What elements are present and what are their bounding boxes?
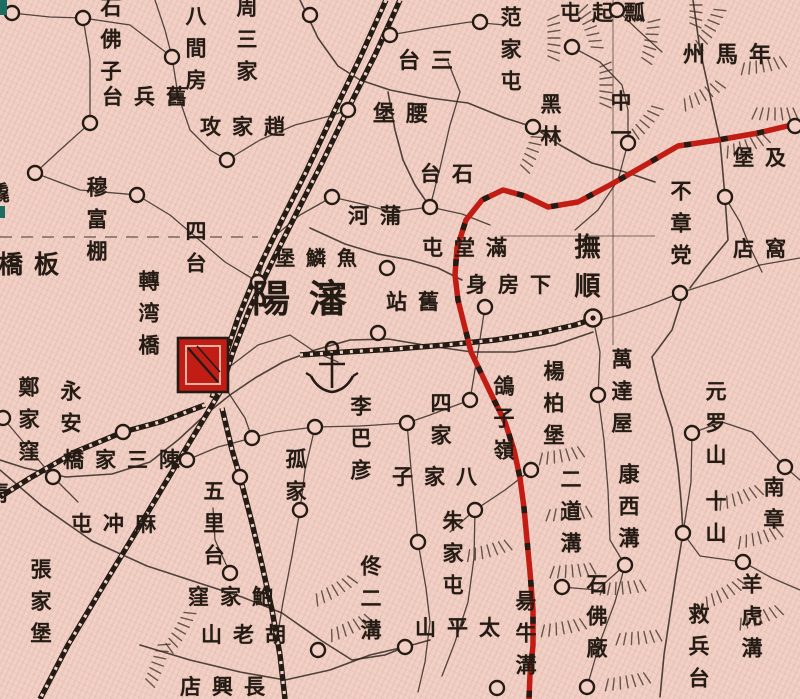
town-marker: [220, 153, 234, 167]
railways: [0, 0, 590, 699]
town-marker: [311, 643, 325, 657]
town-marker: [180, 453, 194, 467]
town-marker: [0, 411, 10, 425]
town-marker: [371, 326, 385, 340]
town-marker: [380, 261, 394, 275]
town-marker: [555, 580, 569, 594]
town-marker: [325, 190, 339, 204]
town-marker: [478, 300, 492, 314]
shenyang-walled-city-icon: [178, 338, 228, 392]
town-marker: [398, 640, 412, 654]
town-marker: [736, 555, 750, 569]
town-marker: [341, 103, 355, 117]
town-marker: [383, 28, 397, 42]
town-marker: [565, 40, 579, 54]
town-marker: [308, 420, 322, 434]
town-marker: [423, 200, 437, 214]
town-marker: [618, 558, 632, 572]
town-marker: [778, 460, 792, 474]
historical-map: 石佛子八間房周三家台兵舊攻家趙穆富棚橋板四台轉湾橋陽瀋堡鱗魚河蒲台三堡腰台石范家…: [0, 0, 800, 699]
town-marker: [83, 116, 97, 130]
town-marker: [526, 120, 540, 134]
town-marker: [251, 275, 265, 289]
town-marker: [293, 503, 307, 517]
town-marker: [621, 136, 635, 150]
town-marker: [473, 15, 487, 29]
town-marker: [468, 503, 482, 517]
town-marker: [685, 426, 699, 440]
town-marker: [411, 535, 425, 549]
town-marker: [400, 416, 414, 430]
town-marker: [718, 190, 732, 204]
town-marker: [610, 3, 624, 17]
town-marker: [245, 431, 259, 445]
town-marker: [223, 566, 237, 580]
scan-edge-mark: [0, 206, 5, 218]
county-seat-marker: [585, 310, 602, 327]
town-marker: [490, 681, 504, 695]
red-boundary-line: [455, 123, 800, 699]
town-marker: [673, 286, 687, 300]
town-marker: [76, 11, 90, 25]
town-marker: [5, 6, 19, 20]
town-marker: [303, 8, 317, 22]
town-marker: [463, 393, 477, 407]
town-marker: [676, 526, 690, 540]
town-marker: [116, 425, 130, 439]
town-marker: [46, 470, 60, 484]
town-marker: [524, 463, 538, 477]
town-marker: [233, 470, 247, 484]
town-marker: [165, 50, 179, 64]
scan-edge-mark: [0, 0, 7, 15]
town-marker: [130, 188, 144, 202]
map-canvas: [0, 0, 800, 699]
town-marker: [591, 388, 605, 402]
town-marker: [788, 119, 800, 133]
town-marker: [28, 166, 42, 180]
town-marker: [580, 680, 594, 694]
